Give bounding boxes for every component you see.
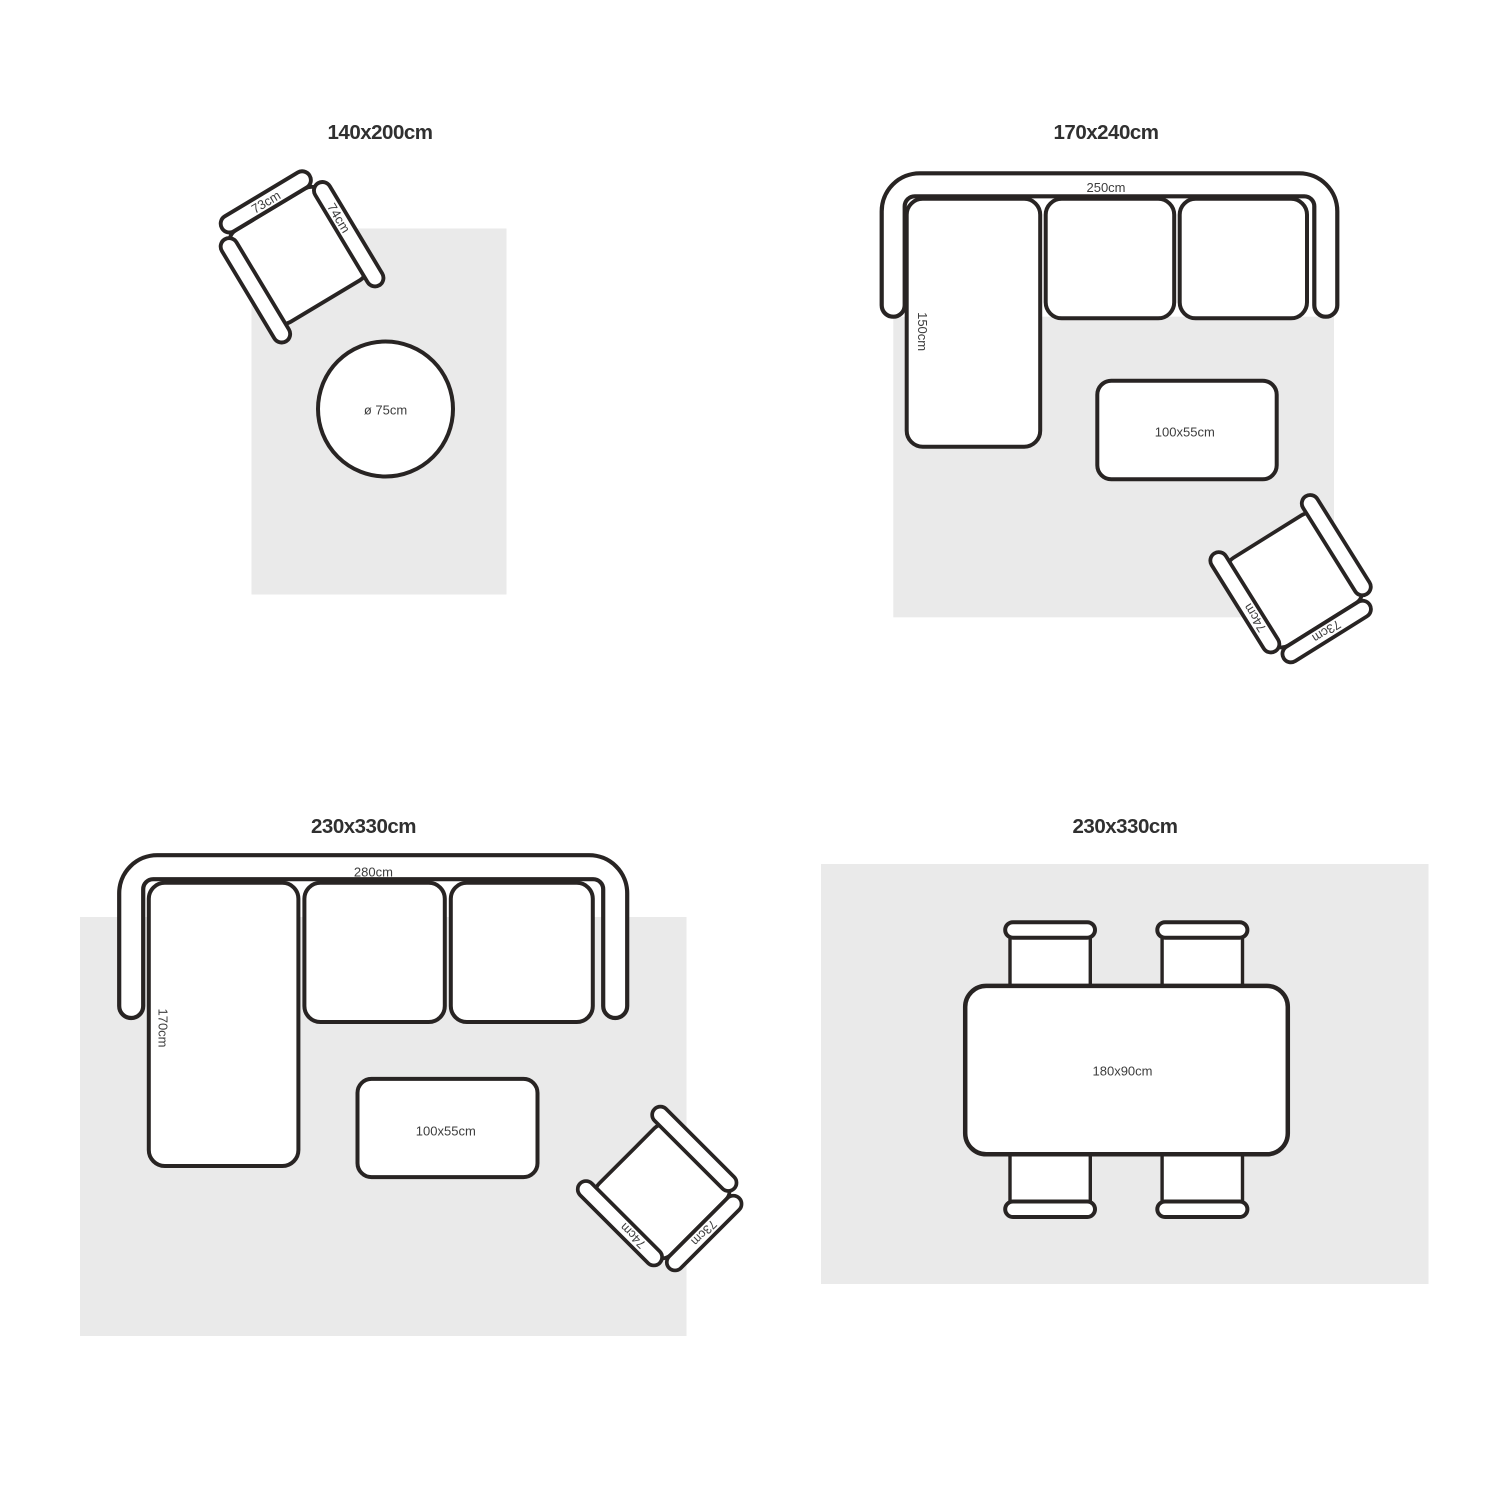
svg-text:150cm: 150cm <box>915 312 930 351</box>
svg-text:170x240cm: 170x240cm <box>1054 121 1159 144</box>
svg-text:180x90cm: 180x90cm <box>1093 1064 1153 1079</box>
svg-text:230x330cm: 230x330cm <box>311 815 416 838</box>
svg-text:100x55cm: 100x55cm <box>1155 425 1215 440</box>
svg-text:170cm: 170cm <box>156 1008 171 1047</box>
svg-text:140x200cm: 140x200cm <box>328 121 433 144</box>
svg-text:250cm: 250cm <box>1086 180 1125 195</box>
svg-text:ø 75cm: ø 75cm <box>364 403 407 418</box>
svg-text:230x330cm: 230x330cm <box>1073 815 1178 838</box>
svg-text:280cm: 280cm <box>354 864 393 879</box>
svg-text:100x55cm: 100x55cm <box>416 1123 476 1138</box>
